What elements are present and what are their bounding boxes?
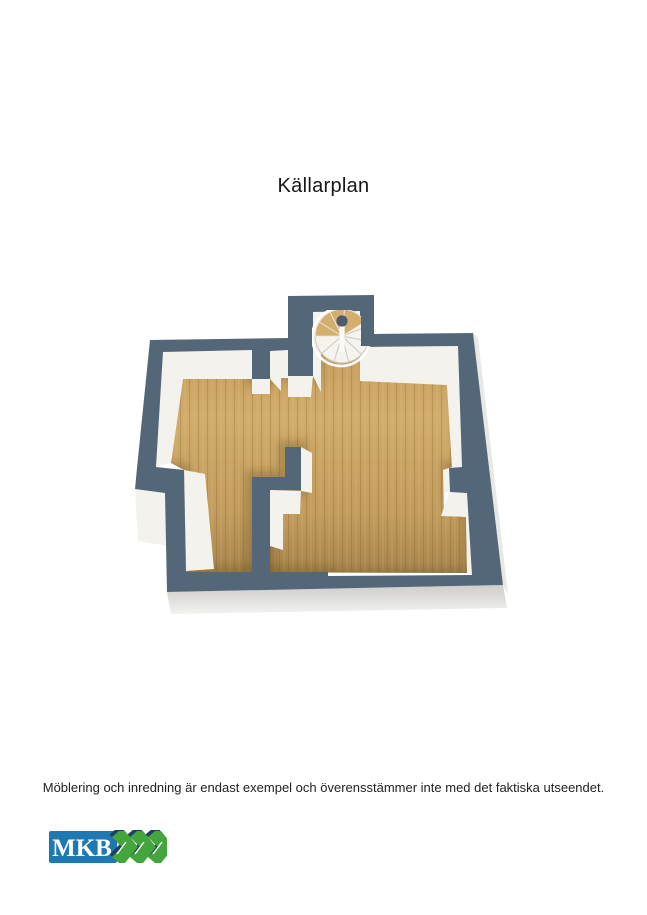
stair-pole-cap: [336, 315, 347, 326]
mkb-logo-text: MKB: [52, 835, 112, 862]
mkb-logo: MKB: [49, 830, 167, 864]
page: Källarplan: [0, 0, 647, 915]
floor-plan-image: [0, 0, 647, 915]
disclaimer-text: Möblering och inredning är endast exempe…: [0, 780, 647, 795]
